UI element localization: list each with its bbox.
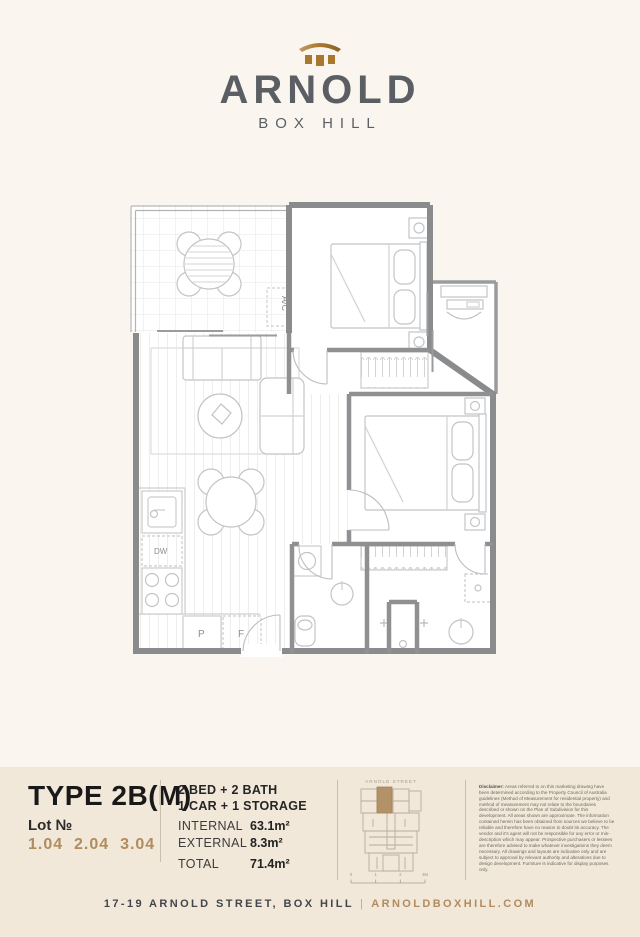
lot-numbers: 1.04 2.04 3.04: [28, 836, 155, 854]
disclaimer-text: Areas referred to on this marketing draw…: [479, 784, 614, 873]
lot-label: Lot №: [28, 817, 72, 834]
area-table: INTERNAL 63.1m² EXTERNAL 8.3m² TOTAL 71.…: [178, 819, 308, 874]
disclaimer: Disclaimer: Areas referred to on this ma…: [479, 784, 615, 874]
footer-separator: |: [360, 898, 365, 910]
area-row-total: TOTAL 71.4m²: [178, 857, 308, 871]
footer-website: ARNOLDBOXHILL.COM: [371, 898, 536, 910]
logo-location: BOX HILL: [0, 115, 640, 132]
building-minimap: ARNOLD STREET 0 1 2: [343, 775, 439, 893]
type-title: TYPE 2B(M): [28, 780, 192, 812]
divider: [465, 780, 466, 880]
logo: ARNOLD BOX HILL: [0, 34, 640, 132]
area-value: 71.4m²: [250, 857, 290, 871]
terrace-dining-set: [177, 232, 241, 296]
disclaimer-title: Disclaimer:: [479, 784, 504, 789]
area-label: EXTERNAL: [178, 836, 250, 850]
floor-plan-drawing: A/C DW P F: [127, 202, 499, 668]
scale-tick-2: 2: [399, 872, 402, 877]
info-band: TYPE 2B(M) Lot № 1.04 2.04 3.04 2 BED + …: [0, 767, 640, 937]
bed-master: [365, 398, 486, 530]
minimap-street-label: ARNOLD STREET: [365, 779, 417, 784]
dining-set: [198, 469, 264, 535]
divider: [337, 780, 338, 880]
area-value: 8.3m²: [250, 836, 283, 850]
dw-label: DW: [154, 547, 168, 556]
pantry-label: P: [198, 629, 205, 640]
divider: [160, 780, 161, 862]
brochure-page: ARNOLD BOX HILL: [0, 0, 640, 937]
config-car-storage: 1 CAR + 1 STORAGE: [178, 798, 307, 814]
floor-plan: A/C DW P F: [127, 202, 499, 668]
logo-name: ARNOLD: [0, 70, 640, 110]
area-row-internal: INTERNAL 63.1m²: [178, 819, 308, 833]
area-row-external: EXTERNAL 8.3m²: [178, 836, 308, 850]
footer-address: 17-19 ARNOLD STREET, BOX HILL: [104, 898, 354, 910]
footer: 17-19 ARNOLD STREET, BOX HILL|ARNOLDBOXH…: [0, 898, 640, 910]
area-value: 63.1m²: [250, 819, 290, 833]
ac-label: A/C: [280, 296, 290, 312]
scale-tick-1: 1: [374, 872, 377, 877]
config-beds-baths: 2 BED + 2 BATH: [178, 782, 307, 798]
fridge-label: F: [238, 629, 244, 640]
minimap-scale-bar: 0 1 2 3M: [350, 872, 429, 883]
scale-tick-3m: 3M: [422, 872, 428, 877]
wardrobe-1: [361, 352, 428, 388]
configuration: 2 BED + 2 BATH 1 CAR + 1 STORAGE: [178, 782, 307, 814]
minimap-highlighted-unit: [377, 787, 392, 813]
area-label: INTERNAL: [178, 819, 250, 833]
scale-tick-0: 0: [350, 872, 353, 877]
logo-arch-icon: [294, 34, 346, 68]
area-label: TOTAL: [178, 857, 250, 871]
